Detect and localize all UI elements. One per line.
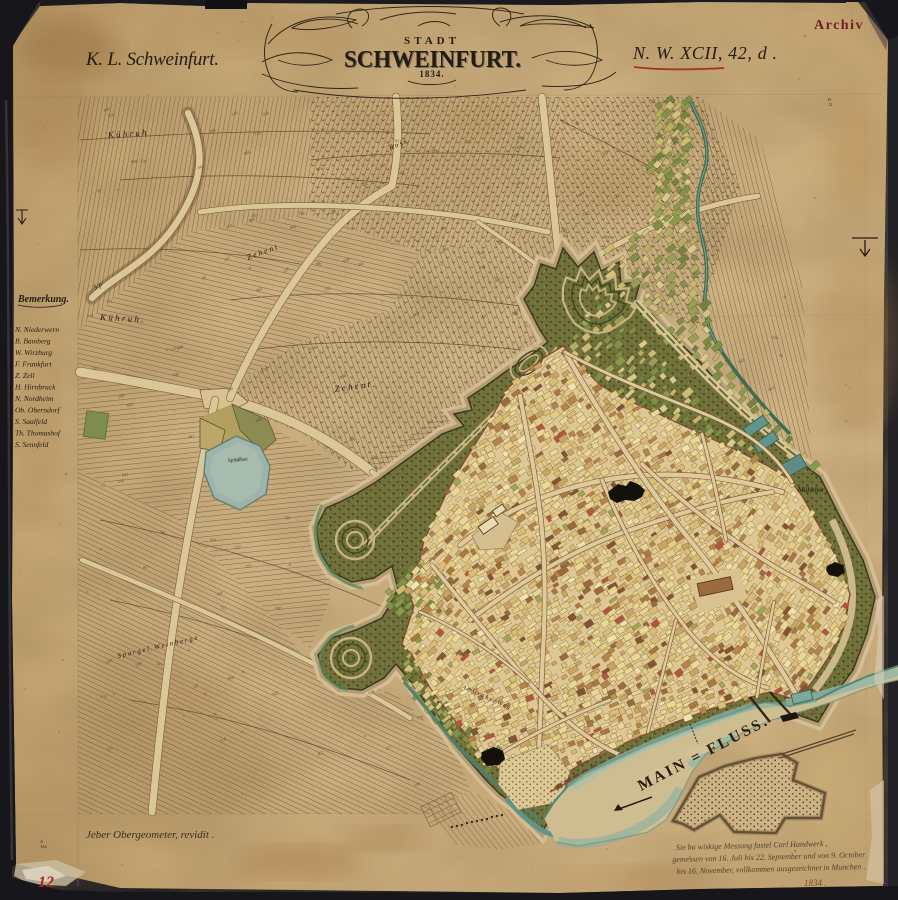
svg-text:447: 447 xyxy=(188,434,194,439)
svg-text:Mühlthor .: Mühlthor . xyxy=(797,486,828,494)
svg-text:W. Wirzburg: W. Wirzburg xyxy=(15,348,52,357)
svg-text:N. W. XCII, 42, d .: N. W. XCII, 42, d . xyxy=(632,43,777,63)
svg-text:957: 957 xyxy=(143,564,150,570)
svg-text:870: 870 xyxy=(107,112,114,118)
svg-text:F. Frankfurt: F. Frankfurt xyxy=(14,360,52,369)
svg-text:357: 357 xyxy=(524,323,531,329)
svg-text:579: 579 xyxy=(417,714,424,720)
svg-text:668: 668 xyxy=(131,159,138,164)
svg-text:141: 141 xyxy=(156,661,163,667)
svg-text:S. Sennfeld: S. Sennfeld xyxy=(15,440,49,449)
svg-text:757: 757 xyxy=(92,366,99,372)
svg-text:205: 205 xyxy=(477,348,484,354)
svg-text:837: 837 xyxy=(309,346,315,351)
svg-text:Jeber Obergeometer, revidit .: Jeber Obergeometer, revidit . xyxy=(86,829,214,841)
svg-text:279: 279 xyxy=(465,139,472,144)
svg-text:12: 12 xyxy=(38,874,54,891)
svg-text:245: 245 xyxy=(679,153,685,158)
svg-text:399: 399 xyxy=(349,437,355,442)
svg-text:736: 736 xyxy=(284,515,291,520)
svg-text:878: 878 xyxy=(261,367,268,372)
svg-text:STADT: STADT xyxy=(404,35,460,47)
svg-text:Ob. Oberndorf: Ob. Oberndorf xyxy=(15,406,60,415)
svg-text:647: 647 xyxy=(122,472,129,477)
svg-text:268: 268 xyxy=(442,246,449,252)
svg-text:904: 904 xyxy=(87,313,94,318)
svg-text:689: 689 xyxy=(670,140,677,146)
svg-text:811: 811 xyxy=(371,152,377,157)
svg-text:Th. Thomashof: Th. Thomashof xyxy=(15,429,61,438)
svg-text:Archiv: Archiv xyxy=(814,18,864,33)
svg-text:B. Bamberg: B. Bamberg xyxy=(15,337,51,346)
svg-text:Z. Zell: Z. Zell xyxy=(15,371,35,380)
svg-text:722: 722 xyxy=(220,605,227,611)
svg-text:N. Niederwern: N. Niederwern xyxy=(14,325,59,334)
svg-text:K. L. Schweinfurt.: K. L. Schweinfurt. xyxy=(85,49,219,70)
svg-text:536: 536 xyxy=(615,122,622,127)
svg-text:988: 988 xyxy=(517,135,523,140)
svg-text:N. Nordheim: N. Nordheim xyxy=(14,394,54,403)
svg-text:500: 500 xyxy=(275,605,282,611)
svg-text:1834.: 1834. xyxy=(419,69,444,79)
svg-text:806: 806 xyxy=(289,224,296,230)
svg-text:278: 278 xyxy=(140,158,147,164)
svg-text:882: 882 xyxy=(316,261,323,267)
svg-text:499: 499 xyxy=(516,144,523,150)
svg-text:H. Hirnbruck: H. Hirnbruck xyxy=(14,383,56,392)
svg-text:534: 534 xyxy=(772,335,779,340)
svg-text:721: 721 xyxy=(106,298,113,304)
svg-text:297: 297 xyxy=(431,148,438,153)
svg-text:1834 .: 1834 . xyxy=(804,878,827,888)
svg-text:915: 915 xyxy=(101,694,107,699)
svg-text:55: 55 xyxy=(779,353,784,358)
svg-text:930: 930 xyxy=(479,264,486,270)
svg-text:202: 202 xyxy=(649,98,656,104)
svg-text:Bemerkung.: Bemerkung. xyxy=(17,294,69,305)
svg-text:237: 237 xyxy=(234,544,241,550)
svg-text:S. Saalfeld: S. Saalfeld xyxy=(15,417,47,426)
svg-text:200: 200 xyxy=(604,234,611,240)
svg-text:920: 920 xyxy=(210,537,217,543)
